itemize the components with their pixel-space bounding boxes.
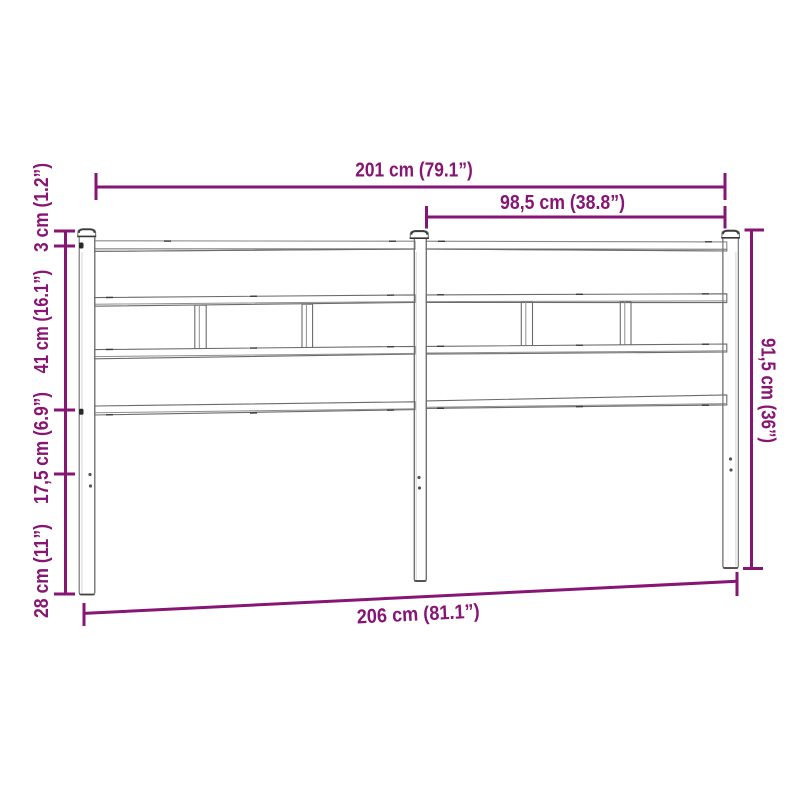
svg-text:28 cm (11”): 28 cm (11”) (31, 524, 53, 618)
svg-text:17,5 cm (6.9”): 17,5 cm (6.9”) (31, 392, 53, 504)
svg-text:201 cm (79.1”): 201 cm (79.1”) (355, 160, 473, 182)
svg-text:41 cm (16.1”): 41 cm (16.1”) (31, 270, 53, 374)
svg-text:98,5 cm (38.8”): 98,5 cm (38.8”) (500, 192, 625, 214)
svg-text:3 cm (1.2”): 3 cm (1.2”) (31, 163, 53, 252)
svg-text:91,5 cm (36”): 91,5 cm (36”) (757, 338, 779, 443)
